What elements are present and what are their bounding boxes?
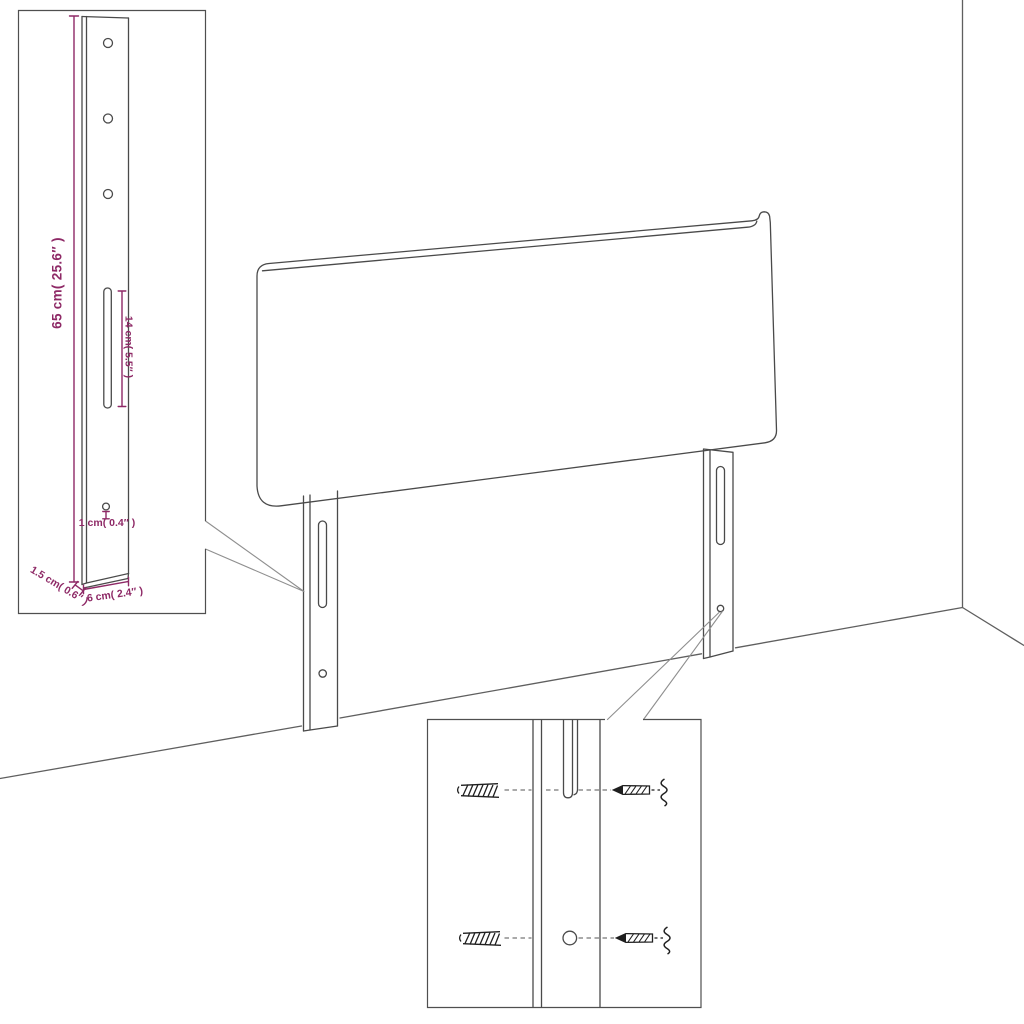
- floor-edge-right: [963, 608, 1024, 646]
- floor-edge-left: [0, 608, 963, 779]
- screw-icon: [616, 927, 670, 954]
- wall-plug-icon: [458, 784, 499, 798]
- panel-outline: [257, 212, 777, 506]
- headboard-leg-right: [704, 449, 734, 659]
- dimension-label-leg-height: 65 cm( 25.6″ ): [50, 237, 64, 329]
- diagram-canvas: 65 cm( 25.6″ ) 14 cm( 5.5″ ) 1 cm( 0.4″ …: [0, 0, 1024, 1024]
- slot-closeup: [564, 720, 573, 798]
- hardware-row-slot: [458, 779, 667, 806]
- dimension-label-hole-diameter: 1 cm( 0.4″ ): [79, 518, 135, 529]
- room-corner: [0, 0, 1024, 779]
- callout-lines-left: [206, 521, 305, 592]
- dimension-lines: [70, 16, 129, 594]
- leg-bottom-hole: [103, 503, 110, 510]
- inset-screw-detail: [428, 612, 723, 1008]
- leg-hole-middle: [104, 114, 113, 123]
- dimension-label-slot-length: 14 cm( 5.5″ ): [123, 316, 134, 378]
- screw-icon: [613, 779, 667, 806]
- leg-hole-top: [104, 39, 113, 48]
- leg-slot: [104, 288, 112, 408]
- panel-top-lip: [263, 221, 757, 271]
- wall-plug-icon: [460, 932, 501, 946]
- headboard-panel: [257, 212, 777, 506]
- dimension-line-leg-height: [70, 16, 79, 582]
- hole-closeup: [563, 931, 577, 945]
- inset-box: [428, 720, 702, 1008]
- leg-hole-lower: [104, 190, 113, 199]
- leg-closeup: [533, 720, 600, 1006]
- hardware-row-hole: [460, 927, 670, 954]
- headboard-dimension-illustration: [0, 0, 1024, 1024]
- headboard-leg-left: [304, 491, 338, 731]
